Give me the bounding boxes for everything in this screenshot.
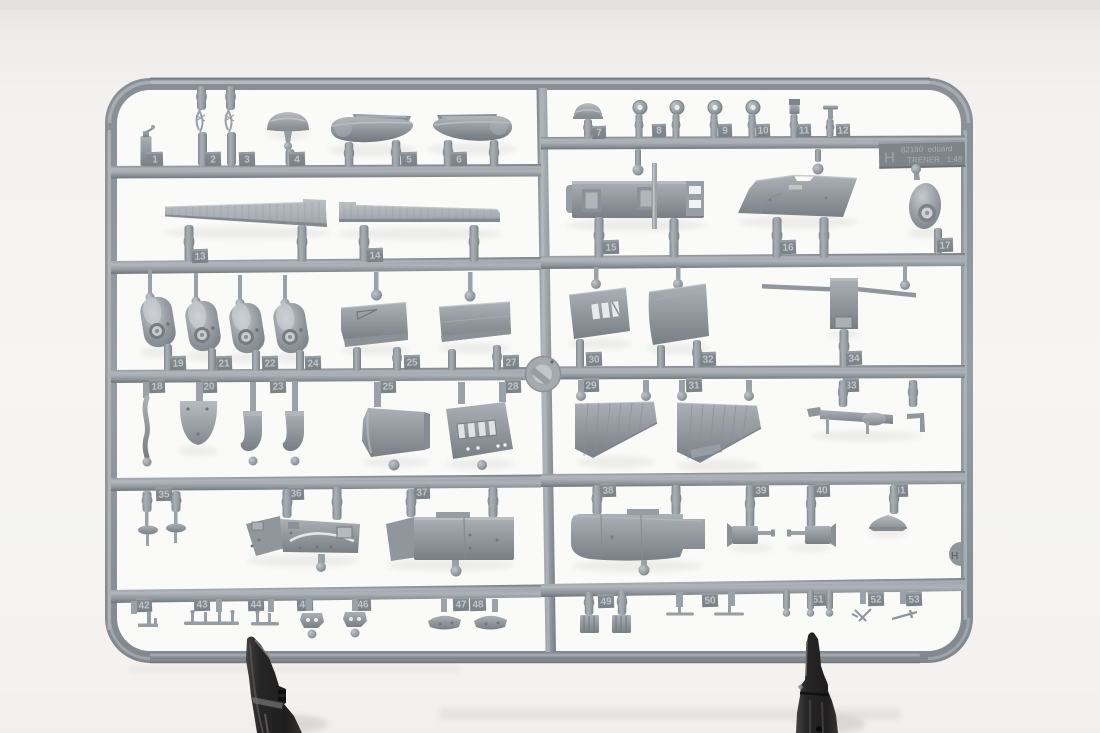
svg-text:50: 50: [704, 595, 716, 606]
svg-text:2: 2: [210, 154, 216, 165]
svg-text:48: 48: [472, 599, 484, 610]
svg-text:20: 20: [203, 381, 215, 392]
svg-text:36: 36: [290, 488, 302, 499]
svg-text:25: 25: [406, 357, 418, 368]
svg-text:42: 42: [138, 600, 150, 611]
svg-text:27: 27: [505, 357, 517, 368]
svg-text:53: 53: [908, 594, 920, 605]
svg-text:32: 32: [702, 354, 714, 365]
svg-text:TRENER 1:48: TRENER 1:48: [907, 155, 963, 165]
svg-text:22: 22: [264, 358, 276, 369]
svg-text:7: 7: [596, 127, 602, 138]
svg-text:8: 8: [656, 125, 662, 136]
svg-text:17: 17: [939, 240, 951, 251]
svg-text:15: 15: [605, 242, 617, 253]
svg-text:52: 52: [870, 594, 882, 605]
svg-text:5: 5: [406, 154, 412, 165]
svg-text:46: 46: [357, 599, 369, 610]
svg-text:47: 47: [455, 599, 467, 610]
svg-text:28: 28: [507, 381, 519, 392]
svg-text:24: 24: [307, 358, 319, 369]
svg-text:21: 21: [218, 358, 230, 369]
svg-text:49: 49: [600, 596, 612, 607]
svg-text:43: 43: [196, 599, 208, 610]
svg-text:4: 4: [294, 154, 300, 165]
svg-text:82180 eduard: 82180 eduard: [901, 144, 953, 154]
svg-text:30: 30: [588, 354, 600, 365]
svg-text:11: 11: [799, 125, 810, 136]
svg-text:19: 19: [172, 358, 184, 369]
svg-text:38: 38: [602, 485, 614, 496]
svg-text:16: 16: [782, 242, 794, 253]
svg-text:3: 3: [244, 154, 250, 165]
svg-text:H: H: [951, 551, 958, 562]
svg-text:1: 1: [152, 154, 158, 165]
svg-text:37: 37: [416, 487, 428, 498]
svg-text:H: H: [884, 150, 895, 167]
svg-text:25: 25: [382, 381, 394, 392]
svg-text:13: 13: [194, 251, 206, 262]
svg-text:51: 51: [812, 594, 824, 605]
svg-text:31: 31: [688, 380, 700, 391]
svg-text:9: 9: [722, 125, 728, 136]
svg-text:35: 35: [158, 489, 170, 500]
svg-text:39: 39: [755, 485, 767, 496]
svg-text:12: 12: [837, 125, 849, 136]
svg-text:23: 23: [272, 381, 284, 392]
svg-text:10: 10: [757, 125, 769, 136]
svg-text:6: 6: [456, 154, 462, 165]
svg-text:34: 34: [848, 353, 860, 364]
svg-text:14: 14: [369, 250, 381, 261]
svg-text:40: 40: [816, 485, 828, 496]
svg-text:29: 29: [585, 380, 597, 391]
svg-text:44: 44: [250, 599, 262, 610]
svg-text:18: 18: [151, 381, 163, 392]
